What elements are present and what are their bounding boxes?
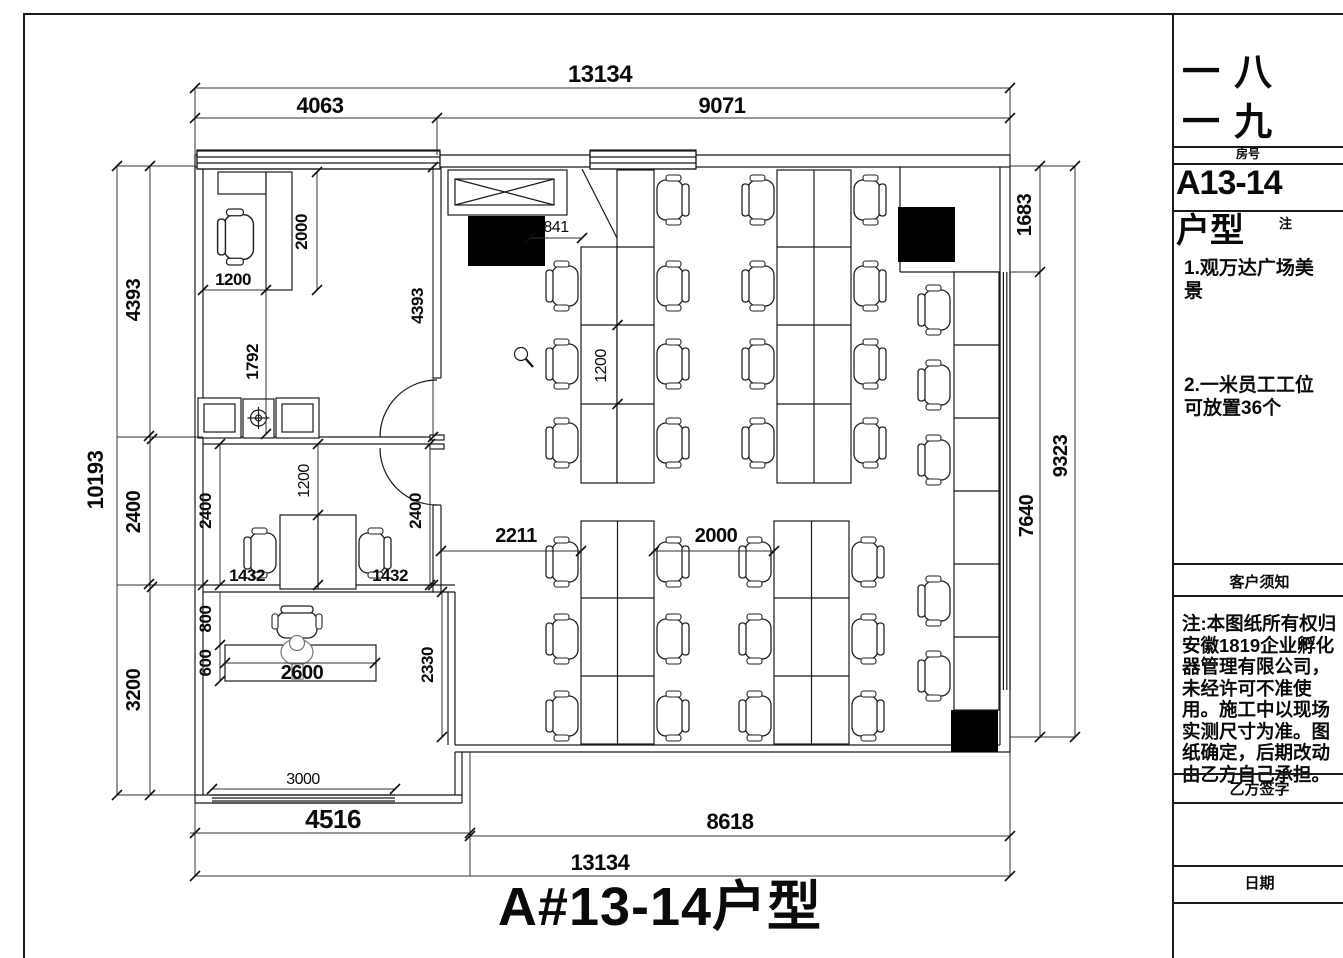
shaft-box	[448, 170, 567, 215]
dim-left-top: 4393	[123, 278, 145, 321]
unit-type-label: 户型	[1176, 211, 1244, 252]
room-number-label: 房号	[1236, 147, 1260, 161]
room-number: A13-14	[1176, 163, 1282, 204]
dim-left-bottom: 3200	[123, 668, 145, 711]
dim-left-total: 10193	[83, 450, 108, 509]
dim-office-gap: 1792	[243, 344, 262, 380]
dim-window-bottom: 3000	[286, 771, 320, 788]
dim-bottom-total: 13134	[571, 850, 631, 875]
dim-top-right: 9071	[699, 93, 746, 118]
dim-bottom-right: 8618	[707, 809, 754, 834]
dim-office-depth: 2000	[292, 214, 311, 250]
title-block: 一八一九 房号 A13-14 户型 注 1.观万达广场美景 2.一米员工工位可放…	[1172, 13, 1343, 958]
dim-reception-desk-depth: 600	[196, 650, 215, 677]
dim-entry: 841	[543, 219, 569, 236]
dim-left-mid: 2400	[123, 490, 145, 533]
dim-right-total: 9323	[1050, 434, 1072, 477]
meeting-room	[244, 515, 391, 589]
office-chair	[218, 209, 254, 265]
dim-meeting-right: 2400	[406, 493, 425, 529]
magnifier-icon	[515, 348, 534, 368]
chair-icon	[272, 606, 322, 638]
dim-meeting-table: 1200	[296, 464, 313, 498]
dim-top-total: 13134	[568, 61, 633, 88]
company-name: 一八一九	[1182, 48, 1332, 148]
signature-label: 乙方签字	[1174, 781, 1343, 799]
note-label: 注	[1279, 216, 1292, 232]
customer-notice-body: 注:本图纸所有权归安徽1819企业孵化器管理有限公司，未经许可不准使用。施工中以…	[1182, 613, 1338, 785]
cad-drawing-sheet: { "plan": { "title": "A#13-14户型", "dims"…	[0, 0, 1343, 958]
dim-bottom-left: 4516	[305, 804, 361, 834]
date-label: 日期	[1174, 875, 1343, 893]
dim-reception-back: 800	[196, 606, 215, 633]
dim-right-bottom: 7640	[1016, 494, 1038, 537]
customer-notice-header: 客户须知	[1174, 574, 1343, 592]
dim-meeting-seat-right: 1432	[372, 566, 408, 585]
dim-desk-run: 1200	[593, 349, 610, 383]
dim-reception-height: 2330	[418, 647, 437, 683]
dim-aisle-left: 2211	[495, 525, 537, 547]
floor-plan: 13134 4063 9071 10193 4393 2400 3200 168…	[0, 0, 1172, 958]
feature-1: 1.观万达广场美景	[1184, 258, 1332, 304]
dim-meeting-seat-left: 1432	[229, 566, 265, 585]
dim-meeting-left: 2400	[196, 493, 215, 529]
feature-2: 2.一米员工工位可放置36个	[1184, 375, 1332, 421]
plan-title: A#13-14户型	[498, 877, 822, 937]
dim-right-top: 1683	[1014, 193, 1036, 236]
dim-top-left: 4063	[297, 93, 344, 118]
dim-reception-desk-len: 2600	[281, 662, 324, 684]
dim-office-height: 4393	[408, 288, 427, 324]
dim-aisle-mid: 2000	[695, 525, 738, 547]
lounge-set	[198, 398, 319, 438]
dim-office-width: 1200	[215, 270, 251, 289]
